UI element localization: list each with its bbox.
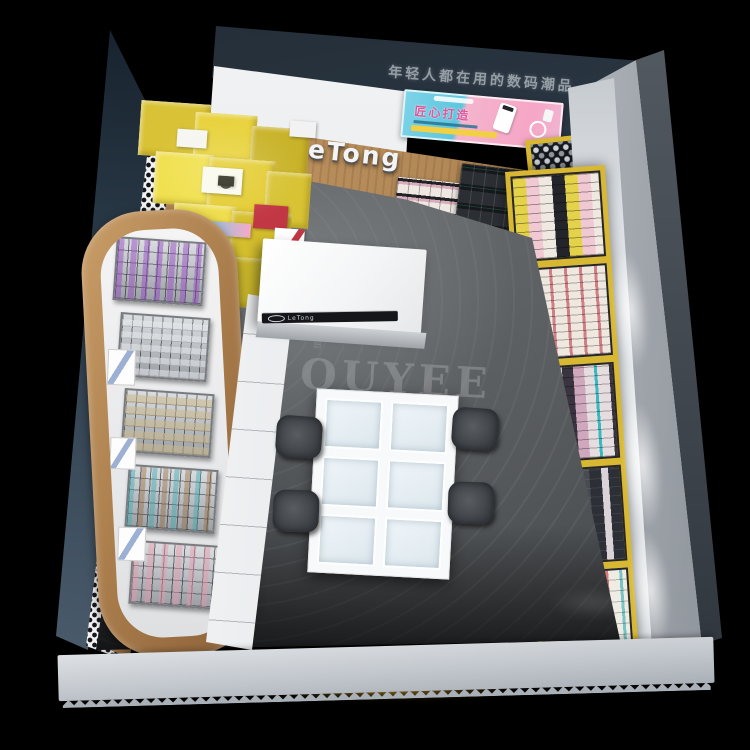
poster-card bbox=[107, 349, 136, 386]
charger-icon bbox=[542, 109, 554, 123]
product-rack bbox=[124, 464, 218, 534]
glass-cell bbox=[320, 456, 381, 509]
floor-reflection bbox=[548, 588, 638, 618]
banner-decor-pill bbox=[433, 96, 473, 104]
glass-cell bbox=[383, 517, 444, 570]
chair bbox=[451, 406, 500, 451]
phone-screen-icon bbox=[502, 105, 514, 112]
counter-brand-label: LeTong bbox=[288, 314, 315, 321]
poster-card bbox=[117, 527, 146, 562]
glass-cell bbox=[386, 459, 447, 512]
chair bbox=[272, 489, 319, 533]
display-table bbox=[307, 388, 458, 579]
glass-cell bbox=[323, 398, 384, 451]
banner-highlight-strip bbox=[411, 125, 497, 138]
glass-cell bbox=[389, 401, 450, 454]
product-rack bbox=[112, 236, 206, 306]
poster-card bbox=[109, 437, 136, 470]
counter-brand-strip: LeTong bbox=[262, 310, 398, 323]
phone-icon bbox=[492, 102, 517, 134]
cashier-counter: LeTong bbox=[257, 238, 426, 333]
store-render: LeTong 年轻人都在用的数码潮品 匠心打造 ♕ OUYEE bbox=[0, 0, 750, 750]
glass-cell bbox=[317, 514, 378, 567]
cable-coil-icon bbox=[529, 120, 547, 138]
counter-logo-icon bbox=[268, 315, 285, 322]
chair bbox=[275, 414, 324, 459]
chair bbox=[447, 481, 494, 525]
